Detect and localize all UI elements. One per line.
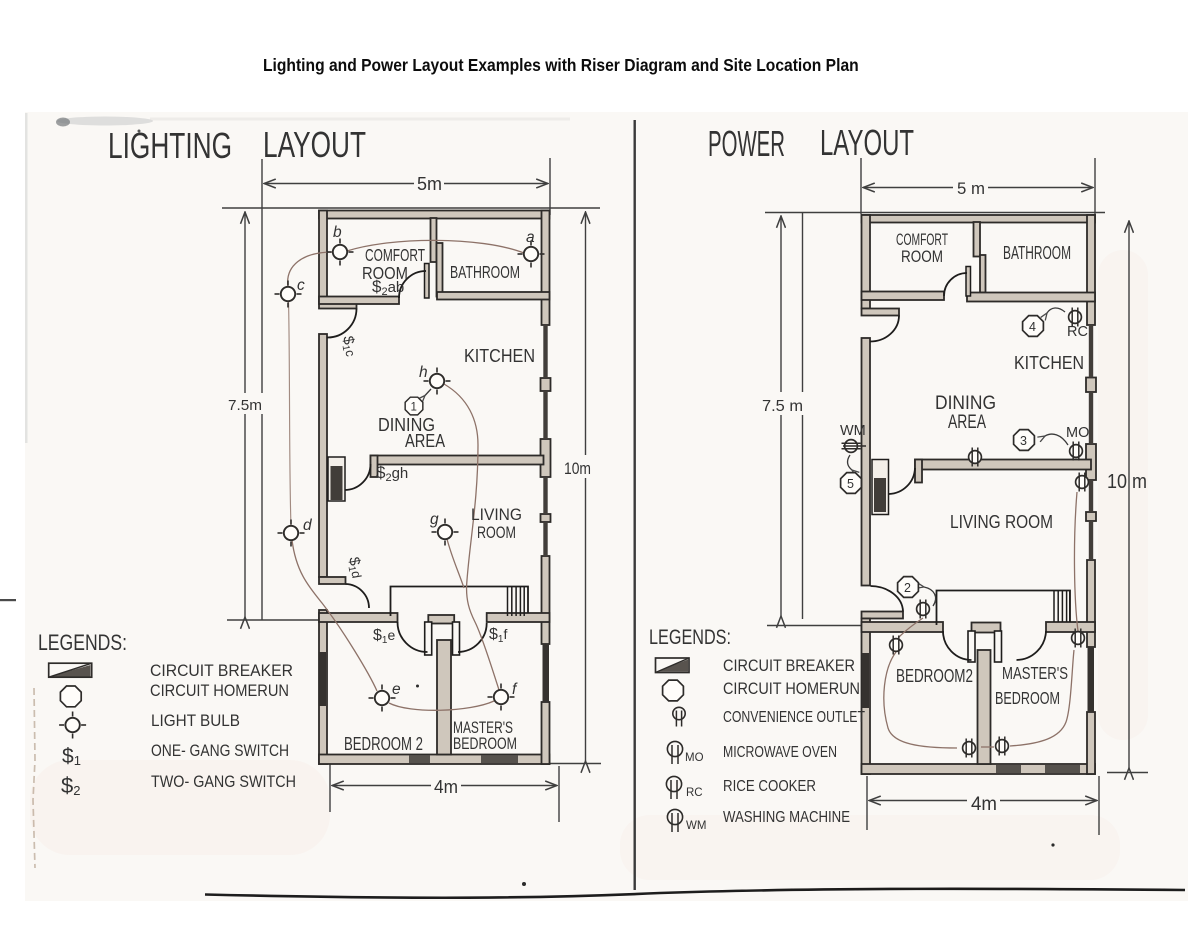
svg-text:KITCHEN: KITCHEN	[1014, 352, 1084, 373]
svg-text:5 m: 5 m	[957, 179, 985, 198]
svg-text:POWER: POWER	[708, 123, 785, 164]
svg-text:ROOM: ROOM	[477, 523, 516, 542]
svg-text:10 m: 10 m	[1107, 471, 1147, 493]
svg-text:g: g	[430, 511, 439, 528]
svg-text:RC: RC	[686, 787, 703, 799]
svg-text:BEDROOM 2: BEDROOM 2	[344, 734, 423, 754]
svg-text:LIGHT BULB: LIGHT BULB	[151, 711, 240, 730]
svg-text:BEDROOM: BEDROOM	[995, 688, 1060, 708]
svg-text:a: a	[526, 229, 535, 246]
svg-text:KITCHEN: KITCHEN	[464, 345, 535, 366]
svg-text:RICE COOKER: RICE COOKER	[723, 778, 816, 795]
svg-text:5m: 5m	[417, 174, 442, 194]
svg-text:CIRCUIT HOMERUN: CIRCUIT HOMERUN	[723, 680, 860, 698]
svg-text:4m: 4m	[434, 777, 458, 797]
svg-text:MO: MO	[685, 752, 704, 764]
svg-text:MO: MO	[1066, 425, 1089, 441]
svg-text:ROOM: ROOM	[901, 247, 943, 266]
svg-text:d: d	[303, 517, 313, 534]
svg-text:WM: WM	[686, 820, 706, 832]
svg-text:BATHROOM: BATHROOM	[1003, 243, 1071, 263]
svg-text:AREA: AREA	[405, 430, 446, 451]
svg-text:4: 4	[1029, 320, 1036, 334]
svg-text:BEDROOM2: BEDROOM2	[896, 666, 973, 686]
svg-text:BEDROOM: BEDROOM	[453, 735, 517, 753]
svg-text:1: 1	[411, 402, 417, 414]
svg-text:MICROWAVE OVEN: MICROWAVE OVEN	[723, 744, 837, 761]
svg-text:7.5 m: 7.5 m	[762, 398, 803, 415]
svg-text:7.5m: 7.5m	[228, 398, 262, 414]
svg-text:$2ab: $2ab	[372, 277, 404, 298]
svg-text:c: c	[297, 277, 305, 294]
svg-text:2: 2	[904, 581, 911, 595]
svg-text:TWO- GANG SWITCH: TWO- GANG SWITCH	[151, 772, 296, 791]
svg-text:CIRCUIT BREAKER: CIRCUIT BREAKER	[150, 661, 293, 680]
svg-text:MASTER'S: MASTER'S	[1002, 663, 1068, 683]
svg-text:4m: 4m	[971, 794, 997, 815]
svg-text:$2gh: $2gh	[376, 463, 408, 484]
svg-text:ONE- GANG SWITCH: ONE- GANG SWITCH	[151, 741, 289, 760]
svg-text:COMFORT: COMFORT	[365, 245, 425, 265]
svg-text:LAYOUT: LAYOUT	[263, 124, 366, 165]
svg-text:CIRCUIT BREAKER: CIRCUIT BREAKER	[723, 657, 855, 675]
svg-text:LAYOUT: LAYOUT	[820, 122, 914, 163]
svg-text:WASHING MACHINE: WASHING MACHINE	[723, 809, 850, 826]
svg-text:LIVING: LIVING	[471, 505, 522, 524]
svg-text:10m: 10m	[564, 459, 591, 478]
svg-text:AREA: AREA	[948, 411, 986, 433]
svg-text:CIRCUIT HOMERUN: CIRCUIT HOMERUN	[150, 681, 289, 700]
svg-text:LEGENDS:: LEGENDS:	[38, 630, 127, 655]
svg-text:b: b	[333, 224, 342, 241]
svg-text:5: 5	[847, 477, 854, 491]
svg-text:BATHROOM: BATHROOM	[450, 262, 520, 282]
svg-text:3: 3	[1020, 434, 1027, 448]
svg-text:LIGHTING: LIGHTING	[108, 125, 232, 166]
svg-text:CONVENIENCE OUTLET: CONVENIENCE OUTLET	[723, 709, 865, 726]
svg-text:RC: RC	[1067, 324, 1088, 340]
svg-text:LIVING ROOM: LIVING ROOM	[950, 512, 1053, 532]
svg-text:h: h	[419, 364, 428, 381]
svg-text:WM: WM	[840, 423, 866, 439]
svg-text:e: e	[392, 681, 401, 698]
svg-text:LEGENDS:: LEGENDS:	[649, 626, 731, 649]
